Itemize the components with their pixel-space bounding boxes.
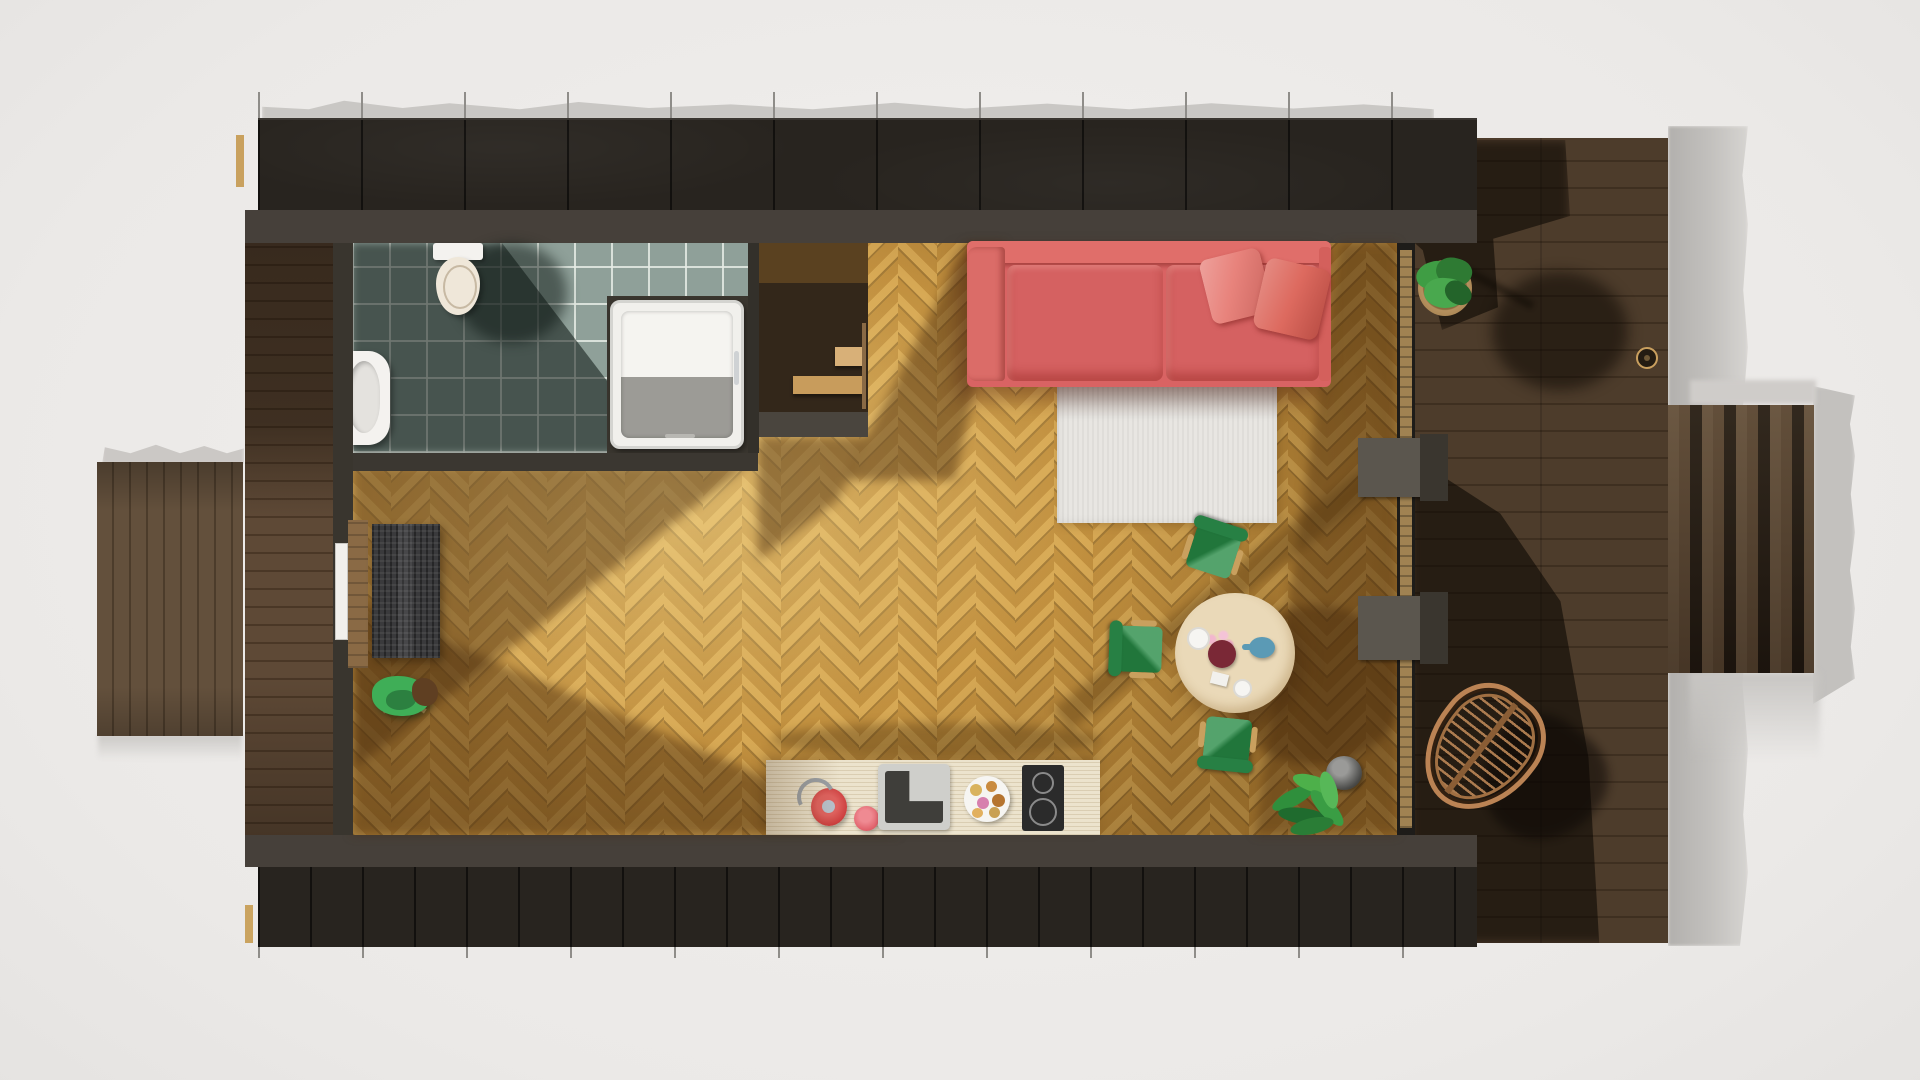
dining-chair <box>1195 711 1259 779</box>
red-kettle <box>811 788 847 826</box>
shower-tray-inner <box>621 311 733 438</box>
sofa-armrest <box>967 247 1005 381</box>
glass-wall-east <box>1397 243 1415 835</box>
doormat <box>372 524 440 658</box>
north-wall-cladding <box>258 118 1477 210</box>
pastry <box>986 781 997 792</box>
wall-stub <box>1358 438 1420 497</box>
right-wing-shadow-bottom <box>1690 672 1820 760</box>
white-rug <box>1057 383 1277 523</box>
entrance-door <box>335 543 348 640</box>
stair-landing <box>759 243 868 283</box>
chair-arm <box>1129 672 1155 679</box>
stair-parapet <box>759 412 868 437</box>
pastry-plate <box>964 776 1010 822</box>
right-slat-wing <box>1668 405 1814 673</box>
shower-tray <box>610 300 744 449</box>
pastry <box>992 794 1005 807</box>
white-plate <box>1187 627 1210 650</box>
round-dining-table <box>1175 593 1295 713</box>
entrance-door-frame <box>348 520 368 668</box>
brown-bag <box>412 678 438 706</box>
bathroom-wall <box>352 453 758 471</box>
floor-plan-render <box>0 0 1920 1080</box>
white-cup <box>1233 679 1252 698</box>
left-wing-shadow-top <box>102 440 244 464</box>
shower-door-handle <box>734 351 739 385</box>
cooktop-ring <box>1029 798 1057 826</box>
paper-card <box>1210 671 1229 687</box>
dining-chair <box>1103 619 1167 679</box>
indoor-plant <box>1270 752 1370 844</box>
red-sofa <box>967 241 1331 387</box>
kitchen-sink <box>878 764 950 830</box>
deck-lantern <box>1636 347 1658 369</box>
chair-seat <box>1117 625 1163 673</box>
stair-tread <box>835 347 863 366</box>
bathroom-wall <box>748 243 759 453</box>
tree-canopy-shadow <box>1492 272 1628 390</box>
chair-backrest <box>1108 620 1123 676</box>
lit-wall-sliver <box>236 135 244 187</box>
lit-corner-sliver <box>245 905 253 943</box>
shower-drain <box>665 434 695 438</box>
cladding-seam-ticks-bottom <box>258 947 1477 958</box>
induction-cooktop <box>1022 765 1064 831</box>
south-wall-cladding <box>258 867 1477 947</box>
counter-shadow <box>770 723 1100 757</box>
window-sill <box>1400 658 1412 828</box>
right-wing-shadow-top <box>1690 380 1816 404</box>
window-sill <box>1400 250 1412 438</box>
pastry <box>972 808 983 818</box>
sofa-seat-cushion <box>1007 265 1163 381</box>
cladding-seam-ticks-top <box>258 92 1477 118</box>
pink-pot <box>854 806 879 831</box>
left-wing-shadow-bottom <box>98 734 242 760</box>
bathroom <box>352 243 748 453</box>
sink-basin <box>885 771 943 823</box>
stair-rail <box>862 323 866 409</box>
pastry <box>970 784 982 796</box>
stair-tread <box>793 376 863 394</box>
flower-bowl <box>1208 640 1236 668</box>
north-interior-wall <box>245 210 1477 243</box>
left-slat-wing <box>97 462 243 736</box>
pastry <box>989 807 1000 818</box>
shower-enclosure <box>607 296 748 453</box>
left-deck-strip <box>245 243 333 840</box>
deck-plant <box>1414 256 1476 316</box>
wall-stub <box>1358 596 1420 660</box>
blue-teapot <box>1249 637 1275 658</box>
cooktop-ring <box>1032 772 1054 794</box>
pastry <box>977 797 989 809</box>
sink-basin-shadow <box>885 771 943 823</box>
kitchen-counter <box>766 760 1100 835</box>
window-sill <box>1400 497 1412 597</box>
coat-stand <box>372 668 452 726</box>
right-wing-shadow <box>1813 386 1855 704</box>
staircase <box>759 243 868 437</box>
chair-arm <box>1131 620 1157 627</box>
